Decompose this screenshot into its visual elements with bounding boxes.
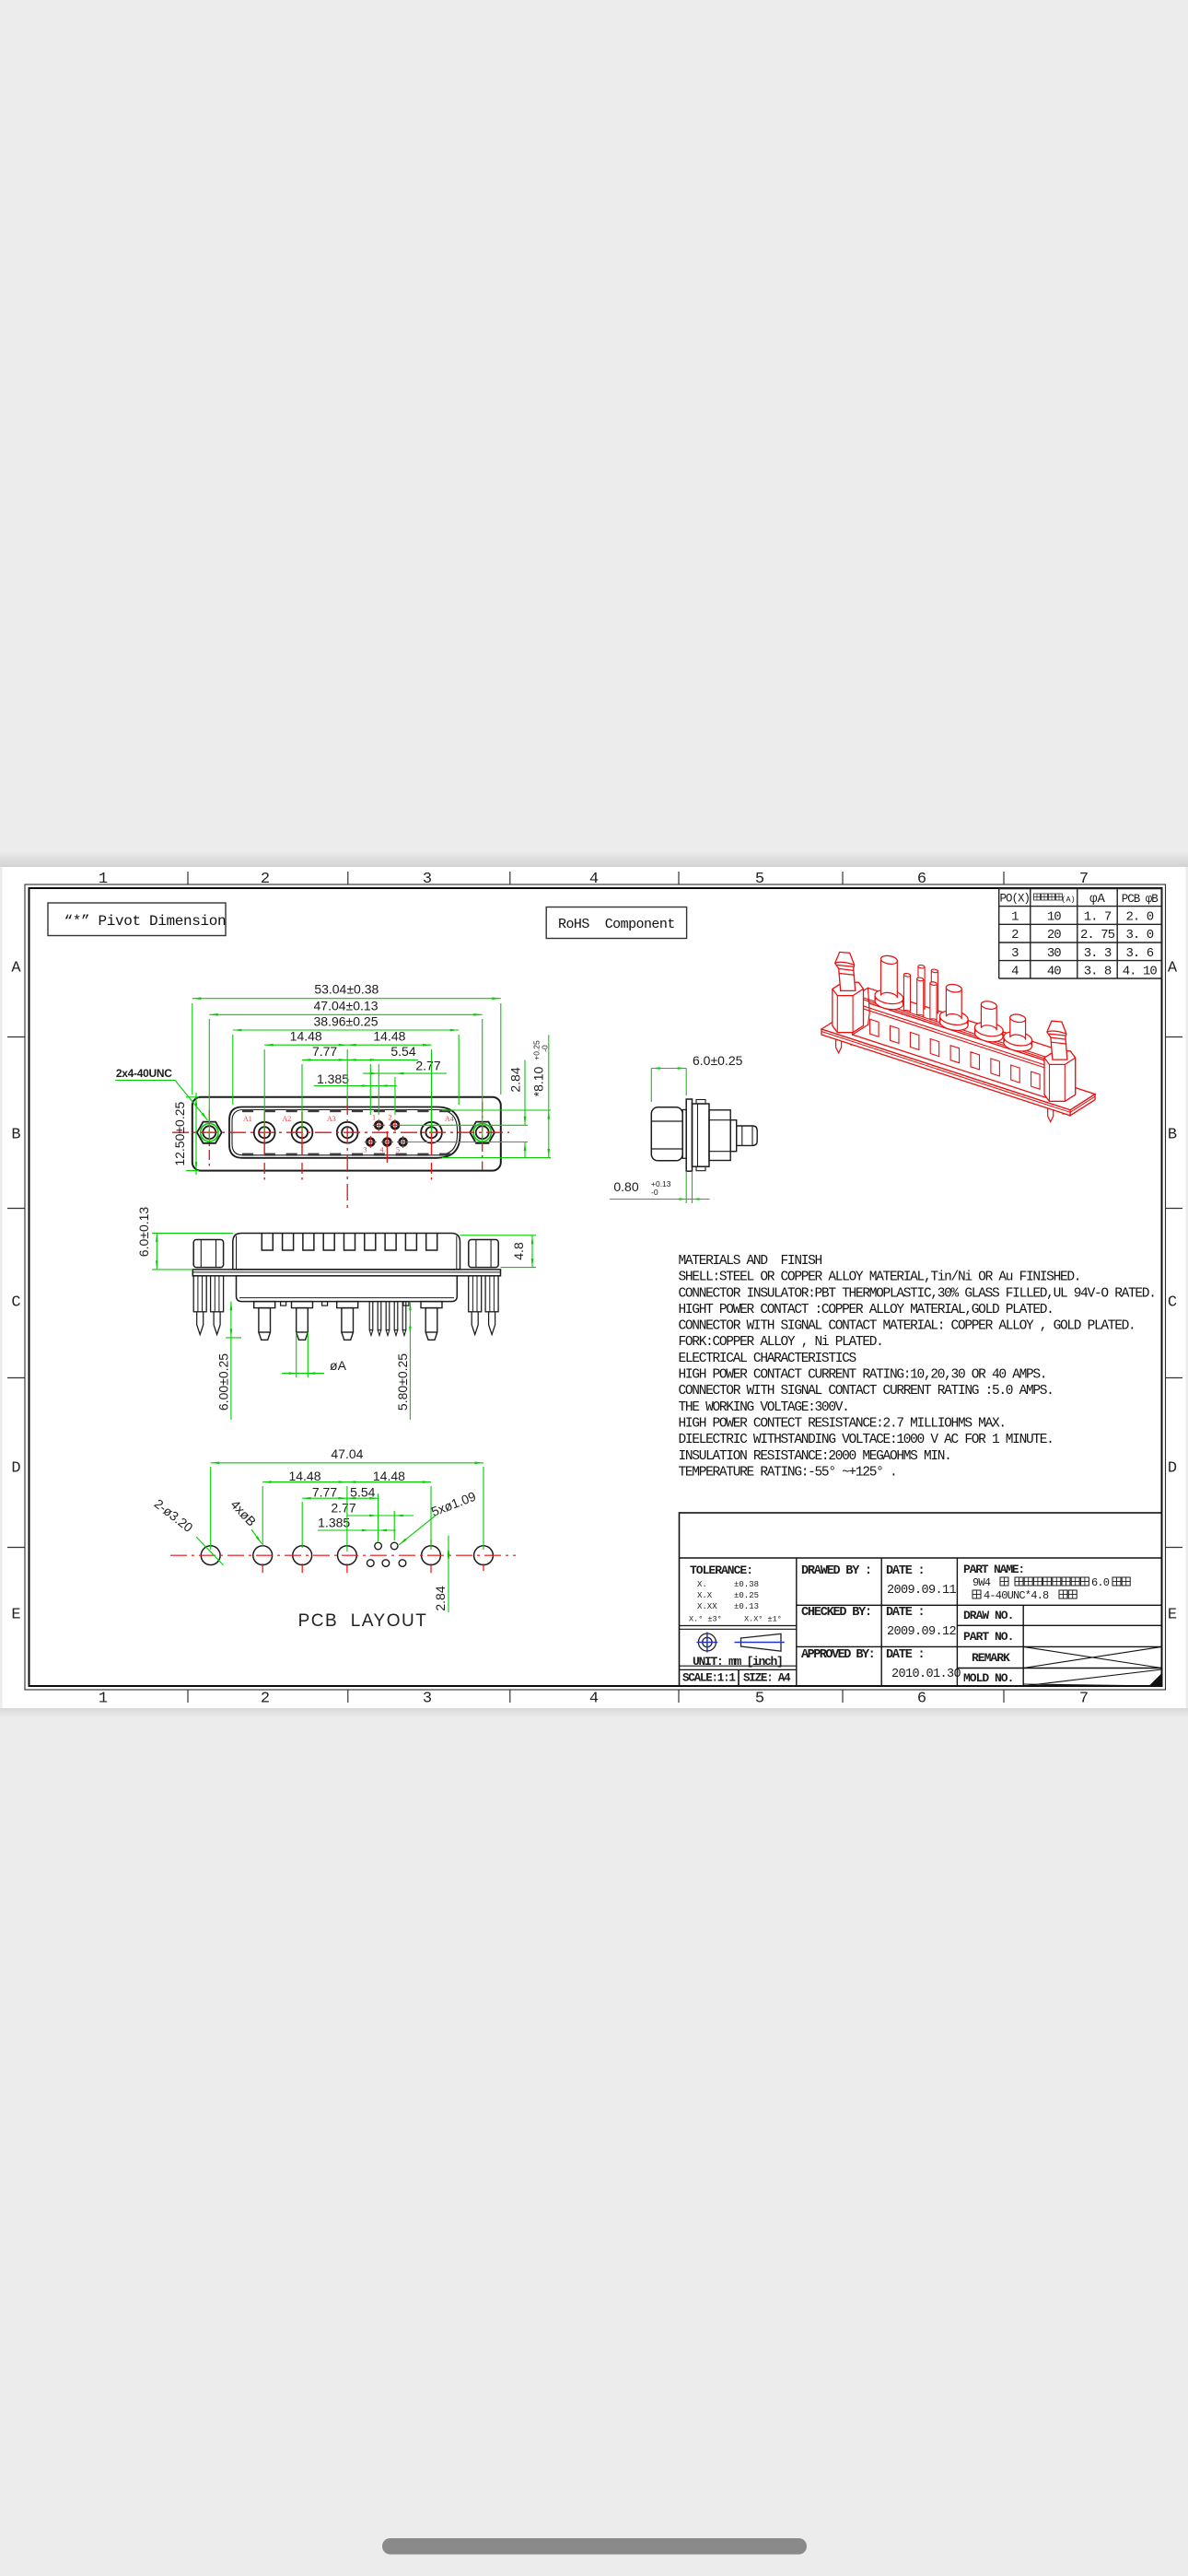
svg-text:C: C — [11, 1294, 20, 1312]
svg-text:7.77: 7.77 — [312, 1485, 337, 1500]
svg-text:ELECTRICAL CHARACTERISTICS: ELECTRICAL CHARACTERISTICS — [679, 1352, 856, 1366]
svg-text:SCALE:1:1: SCALE:1:1 — [682, 1672, 735, 1685]
svg-text:47.04±0.13: 47.04±0.13 — [314, 999, 379, 1013]
svg-text:14.48: 14.48 — [290, 1029, 322, 1044]
svg-text:3: 3 — [423, 871, 432, 888]
svg-text:3: 3 — [364, 1146, 367, 1154]
svg-text:-0: -0 — [651, 1188, 658, 1197]
svg-text:A1: A1 — [243, 1115, 252, 1123]
svg-text:X.X: X.X — [697, 1591, 713, 1600]
svg-text:PART NO.: PART NO. — [963, 1630, 1013, 1644]
svg-text:UNIT: mm [inch]: UNIT: mm [inch] — [693, 1655, 783, 1669]
svg-text:CONNECTOR WITH SIGNAL CONTACT: CONNECTOR WITH SIGNAL CONTACT MATERIAL: … — [679, 1319, 1136, 1334]
svg-text:APPROVED BY:: APPROVED BY: — [801, 1648, 874, 1662]
svg-text:CHECKED BY:: CHECKED BY: — [801, 1606, 871, 1620]
svg-text:1: 1 — [372, 1114, 376, 1122]
svg-text:2. 0: 2. 0 — [1125, 910, 1153, 925]
svg-text:1.385: 1.385 — [317, 1071, 349, 1086]
svg-text:14.48: 14.48 — [373, 1029, 405, 1044]
svg-text:PCB LAYOUT: PCB LAYOUT — [298, 1611, 428, 1631]
svg-text:2010.01.30: 2010.01.30 — [891, 1668, 961, 1681]
svg-text:6: 6 — [917, 1691, 926, 1708]
svg-text:A3: A3 — [327, 1115, 336, 1123]
svg-text:SHELL:STEEL OR COPPER ALLOY MA: SHELL:STEEL OR COPPER ALLOY MATERIAL,Tin… — [679, 1270, 1081, 1285]
svg-text:A2: A2 — [283, 1115, 292, 1123]
svg-text:*8.10: *8.10 — [531, 1066, 546, 1096]
svg-text:3: 3 — [423, 1691, 432, 1708]
svg-text:SIZE: A4: SIZE: A4 — [743, 1672, 791, 1685]
svg-text:1.385: 1.385 — [318, 1516, 350, 1530]
svg-text:5: 5 — [755, 1691, 764, 1708]
svg-text:40: 40 — [1047, 964, 1061, 978]
svg-text:4. 10: 4. 10 — [1123, 964, 1158, 978]
svg-text:A4: A4 — [445, 1115, 454, 1123]
svg-text:38.96±0.25: 38.96±0.25 — [314, 1013, 379, 1028]
svg-text:2: 2 — [261, 1691, 270, 1708]
svg-text:4-40UNC*4.8: 4-40UNC*4.8 — [984, 1589, 1049, 1602]
svg-text:2: 2 — [389, 1114, 392, 1122]
svg-text:D: D — [1168, 1460, 1177, 1478]
svg-text:3. 8: 3. 8 — [1084, 964, 1112, 978]
svg-text:2009.09.12: 2009.09.12 — [887, 1625, 957, 1639]
svg-text:6.0: 6.0 — [1091, 1576, 1110, 1589]
svg-text:E: E — [1168, 1607, 1177, 1624]
svg-text:B: B — [1168, 1127, 1177, 1144]
svg-text:FORK:COPPER ALLOY , Ni PLATED.: FORK:COPPER ALLOY , Ni PLATED. — [679, 1335, 883, 1350]
svg-text:5.54: 5.54 — [350, 1485, 375, 1500]
svg-text:6: 6 — [917, 871, 926, 888]
svg-text:PO(X): PO(X) — [1000, 893, 1031, 906]
svg-text:-0: -0 — [541, 1045, 550, 1052]
svg-text:2.84: 2.84 — [508, 1067, 523, 1092]
svg-text:7: 7 — [1079, 1691, 1089, 1708]
svg-text:DRAW NO.: DRAW NO. — [963, 1609, 1013, 1622]
svg-text:2: 2 — [1011, 928, 1019, 943]
svg-text:2: 2 — [261, 871, 270, 888]
svg-text:1: 1 — [1011, 910, 1019, 925]
svg-text:14.48: 14.48 — [373, 1469, 405, 1483]
svg-text:1: 1 — [99, 871, 108, 888]
svg-text:5: 5 — [755, 871, 764, 888]
svg-text:3. 6: 3. 6 — [1125, 946, 1153, 961]
svg-text:4: 4 — [589, 871, 599, 888]
svg-text:X.XX: X.XX — [697, 1602, 717, 1611]
svg-text:±0.25: ±0.25 — [734, 1591, 759, 1600]
svg-text:DATE :: DATE : — [886, 1648, 924, 1662]
svg-text:HIGH POWER CONTACT CURRENT RAT: HIGH POWER CONTACT CURRENT RATING:10,20,… — [679, 1368, 1047, 1383]
svg-text:X.° ±3°: X.° ±3° — [689, 1615, 722, 1624]
svg-text:9W4: 9W4 — [973, 1576, 991, 1589]
svg-text:C: C — [1168, 1294, 1177, 1312]
svg-text:X.X° ±1°: X.X° ±1° — [744, 1615, 782, 1624]
svg-text:5.54: 5.54 — [390, 1044, 415, 1059]
svg-text:CONNECTOR WITH SIGNAL CONTACT: CONNECTOR WITH SIGNAL CONTACT CURRENT RA… — [679, 1384, 1054, 1399]
svg-text:12.50±0.25: 12.50±0.25 — [172, 1102, 187, 1166]
svg-text:4: 4 — [1011, 964, 1019, 978]
svg-text:REMARK: REMARK — [972, 1651, 1010, 1665]
svg-text:2.84: 2.84 — [433, 1586, 448, 1610]
svg-text:B: B — [11, 1127, 20, 1144]
svg-text:5: 5 — [396, 1146, 400, 1154]
svg-text:RoHS Component: RoHS Component — [558, 917, 675, 932]
svg-text:DATE :: DATE : — [886, 1606, 924, 1620]
svg-text:20: 20 — [1047, 928, 1061, 943]
svg-text:7: 7 — [1079, 871, 1089, 888]
svg-text:HIGHT POWER CONTACT :COPPER AL: HIGHT POWER CONTACT :COPPER ALLOY MATERI… — [679, 1303, 1054, 1317]
svg-text:6.0±0.25: 6.0±0.25 — [693, 1053, 743, 1068]
svg-text:“*” Pivot Dimension: “*” Pivot Dimension — [64, 913, 227, 930]
svg-text:CONNECTOR INSULATOR:PBT THERMO: CONNECTOR INSULATOR:PBT THERMOPLASTIC,30… — [679, 1286, 1156, 1301]
svg-text:±0.13: ±0.13 — [734, 1602, 759, 1611]
svg-text:±0.38: ±0.38 — [734, 1580, 759, 1589]
svg-text:MOLD NO.: MOLD NO. — [963, 1671, 1013, 1685]
svg-text:2.77: 2.77 — [331, 1501, 355, 1516]
svg-text:(A): (A) — [1061, 896, 1075, 905]
svg-text:4.8: 4.8 — [511, 1242, 526, 1260]
svg-text:TOLERANCE:: TOLERANCE: — [690, 1563, 752, 1577]
svg-text:E: E — [11, 1607, 20, 1624]
svg-text:HIGH POWER CONTECT RESISTANCE:: HIGH POWER CONTECT RESISTANCE:2.7 MILLIO… — [679, 1417, 1006, 1432]
svg-text:4: 4 — [380, 1146, 384, 1154]
svg-text:2x4-40UNC: 2x4-40UNC — [116, 1067, 172, 1080]
svg-text:4: 4 — [589, 1691, 599, 1708]
svg-text:53.04±0.38: 53.04±0.38 — [314, 982, 379, 997]
svg-text:D: D — [11, 1460, 20, 1478]
svg-text:2. 75: 2. 75 — [1080, 928, 1115, 943]
svg-text:5.80±0.25: 5.80±0.25 — [395, 1353, 410, 1411]
svg-text:A: A — [11, 960, 21, 978]
svg-text:INSULATION RESISTANCE:2000 MEG: INSULATION RESISTANCE:2000 MEGAOHMS MIN. — [679, 1449, 951, 1464]
svg-text:14.48: 14.48 — [288, 1469, 320, 1483]
svg-text:30: 30 — [1047, 946, 1061, 961]
svg-text:PCB φB: PCB φB — [1122, 893, 1159, 906]
svg-text:3. 3: 3. 3 — [1084, 946, 1112, 961]
svg-text:2009.09.11: 2009.09.11 — [887, 1584, 957, 1598]
svg-text:10: 10 — [1047, 910, 1061, 925]
svg-text:øA: øA — [330, 1358, 347, 1373]
svg-text:DATE :: DATE : — [886, 1564, 924, 1578]
svg-text:0.80: 0.80 — [613, 1179, 638, 1194]
svg-text:3: 3 — [1011, 946, 1019, 961]
svg-text:3. 0: 3. 0 — [1125, 928, 1153, 943]
svg-text:MATERIALS AND FINISH: MATERIALS AND FINISH — [679, 1254, 822, 1269]
svg-text:47.04: 47.04 — [331, 1446, 363, 1461]
svg-text:2.77: 2.77 — [415, 1059, 440, 1073]
svg-text:7.77: 7.77 — [312, 1044, 337, 1059]
svg-text:1: 1 — [99, 1691, 108, 1708]
svg-text:THE WORKING VOLTAGE:300V.: THE WORKING VOLTAGE:300V. — [679, 1400, 849, 1415]
svg-text:6.00±0.25: 6.00±0.25 — [216, 1353, 231, 1411]
svg-text:6.0±0.13: 6.0±0.13 — [136, 1207, 151, 1258]
svg-text:φA: φA — [1089, 892, 1105, 907]
svg-text:TEMPERATURE RATING:-55° ~+125°: TEMPERATURE RATING:-55° ~+125° . — [679, 1466, 897, 1481]
svg-text:DIELECTRIC WITHSTANDING VOLTAC: DIELECTRIC WITHSTANDING VOLTACE:1000 V A… — [679, 1433, 1054, 1447]
svg-text:1. 7: 1. 7 — [1084, 910, 1112, 925]
svg-text:A: A — [1168, 960, 1178, 978]
svg-text:X.: X. — [697, 1580, 707, 1589]
svg-text:PART NAME:: PART NAME: — [963, 1563, 1024, 1576]
svg-text:DRAWED BY :: DRAWED BY : — [801, 1564, 871, 1578]
